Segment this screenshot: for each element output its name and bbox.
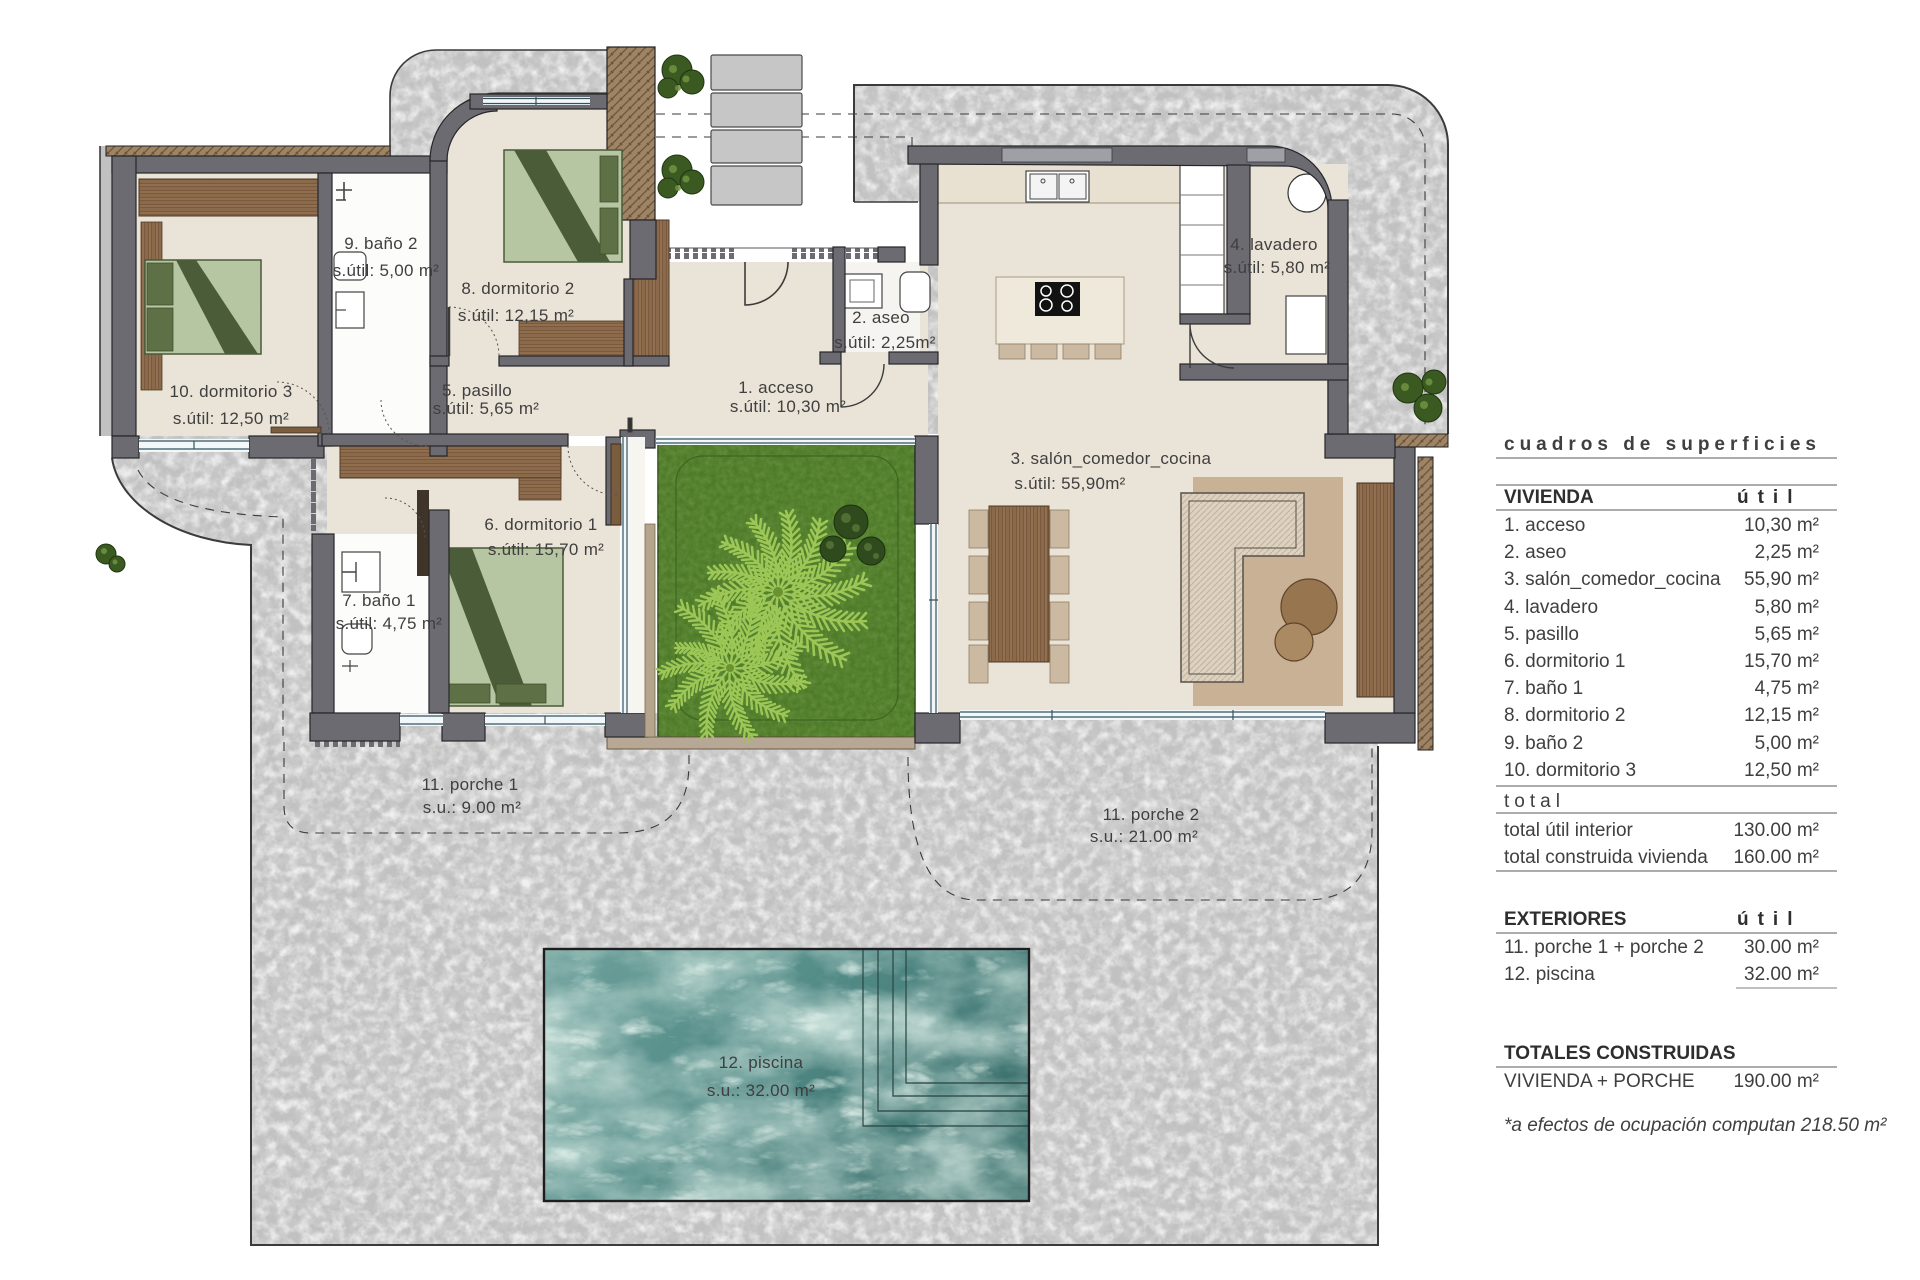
svg-text:10. dormitorio 3: 10. dormitorio 3 bbox=[1504, 760, 1636, 781]
svg-text:s.útil: 5,65 m²: s.útil: 5,65 m² bbox=[433, 399, 540, 418]
svg-text:5,80 m²: 5,80 m² bbox=[1755, 597, 1819, 618]
svg-text:s.útil: 10,30 m²: s.útil: 10,30 m² bbox=[730, 397, 846, 416]
svg-text:s.útil: 55,90m²: s.útil: 55,90m² bbox=[1014, 474, 1125, 493]
svg-text:VIVIENDA: VIVIENDA bbox=[1504, 487, 1594, 508]
svg-text:s.útil: 12,50 m²: s.útil: 12,50 m² bbox=[173, 409, 289, 428]
svg-text:6. dormitorio 1: 6. dormitorio 1 bbox=[1504, 651, 1625, 672]
svg-text:6. dormitorio 1: 6. dormitorio 1 bbox=[484, 515, 597, 534]
svg-text:total: total bbox=[1504, 791, 1565, 812]
svg-text:1. acceso: 1. acceso bbox=[1504, 515, 1585, 536]
svg-text:8. dormitorio 2: 8. dormitorio 2 bbox=[1504, 705, 1625, 726]
svg-text:4. lavadero: 4. lavadero bbox=[1504, 597, 1598, 618]
svg-text:9. baño 2: 9. baño 2 bbox=[1504, 733, 1583, 754]
svg-text:10,30 m²: 10,30 m² bbox=[1744, 515, 1819, 536]
svg-text:total construida vivienda: total construida vivienda bbox=[1504, 847, 1708, 868]
svg-text:s.u.: 9.00 m²: s.u.: 9.00 m² bbox=[423, 798, 521, 817]
svg-text:5,00 m²: 5,00 m² bbox=[1755, 733, 1819, 754]
svg-text:5,65 m²: 5,65 m² bbox=[1755, 624, 1819, 645]
svg-text:1. acceso: 1. acceso bbox=[738, 378, 813, 397]
svg-text:útil: útil bbox=[1737, 909, 1802, 930]
svg-text:9. baño 2: 9. baño 2 bbox=[344, 234, 418, 253]
svg-text:2. aseo: 2. aseo bbox=[852, 308, 910, 327]
svg-text:7. baño 1: 7. baño 1 bbox=[1504, 678, 1583, 699]
svg-text:cuadros de superficies: cuadros de superficies bbox=[1504, 434, 1821, 455]
svg-text:32.00 m²: 32.00 m² bbox=[1744, 964, 1819, 985]
svg-text:*a efectos de ocupación comput: *a efectos de ocupación computan 218.50 … bbox=[1504, 1115, 1887, 1136]
svg-text:s.u.: 32.00 m²: s.u.: 32.00 m² bbox=[707, 1081, 815, 1100]
svg-text:s.útil: 12,15 m²: s.útil: 12,15 m² bbox=[458, 306, 574, 325]
svg-text:5. pasillo: 5. pasillo bbox=[1504, 624, 1579, 645]
svg-text:11. porche 1: 11. porche 1 bbox=[422, 775, 519, 794]
svg-text:12,50 m²: 12,50 m² bbox=[1744, 760, 1819, 781]
svg-text:s.útil: 15,70 m²: s.útil: 15,70 m² bbox=[488, 540, 604, 559]
svg-text:3. salón_comedor_cocina: 3. salón_comedor_cocina bbox=[1011, 449, 1212, 468]
svg-text:30.00 m²: 30.00 m² bbox=[1744, 937, 1819, 958]
svg-text:2,25 m²: 2,25 m² bbox=[1755, 542, 1819, 563]
svg-text:5. pasillo: 5. pasillo bbox=[442, 381, 512, 400]
svg-text:s.útil: 5,00 m²: s.útil: 5,00 m² bbox=[333, 261, 440, 280]
svg-text:11. porche 1 + porche 2: 11. porche 1 + porche 2 bbox=[1504, 937, 1704, 958]
svg-text:12. piscina: 12. piscina bbox=[719, 1053, 804, 1072]
svg-text:4. lavadero: 4. lavadero bbox=[1230, 235, 1317, 254]
svg-text:12. piscina: 12. piscina bbox=[1504, 964, 1595, 985]
svg-text:15,70 m²: 15,70 m² bbox=[1744, 651, 1819, 672]
svg-text:8. dormitorio 2: 8. dormitorio 2 bbox=[461, 279, 574, 298]
svg-text:130.00 m²: 130.00 m² bbox=[1733, 820, 1819, 841]
svg-text:12,15 m²: 12,15 m² bbox=[1744, 705, 1819, 726]
svg-text:11. porche 2: 11. porche 2 bbox=[1103, 805, 1200, 824]
svg-text:7. baño 1: 7. baño 1 bbox=[342, 591, 416, 610]
svg-text:4,75 m²: 4,75 m² bbox=[1755, 678, 1819, 699]
svg-text:s.útil: 5,80 m²: s.útil: 5,80 m² bbox=[1224, 258, 1331, 277]
svg-text:3. salón_comedor_cocina: 3. salón_comedor_cocina bbox=[1504, 569, 1721, 590]
svg-text:útil: útil bbox=[1737, 487, 1802, 508]
svg-text:55,90 m²: 55,90 m² bbox=[1744, 569, 1819, 590]
svg-text:EXTERIORES: EXTERIORES bbox=[1504, 909, 1626, 930]
svg-text:s.útil: 4,75 m²: s.útil: 4,75 m² bbox=[336, 614, 443, 633]
svg-text:2. aseo: 2. aseo bbox=[1504, 542, 1566, 563]
svg-text:VIVIENDA + PORCHE: VIVIENDA + PORCHE bbox=[1504, 1071, 1695, 1092]
svg-text:s.u.: 21.00 m²: s.u.: 21.00 m² bbox=[1090, 827, 1198, 846]
svg-text:total útil interior: total útil interior bbox=[1504, 820, 1634, 841]
svg-text:s.útil: 2,25m²: s.útil: 2,25m² bbox=[834, 333, 936, 352]
svg-text:TOTALES CONSTRUIDAS: TOTALES CONSTRUIDAS bbox=[1504, 1043, 1736, 1064]
svg-text:190.00 m²: 190.00 m² bbox=[1733, 1071, 1819, 1092]
svg-text:160.00 m²: 160.00 m² bbox=[1733, 847, 1819, 868]
svg-text:10. dormitorio 3: 10. dormitorio 3 bbox=[170, 382, 293, 401]
